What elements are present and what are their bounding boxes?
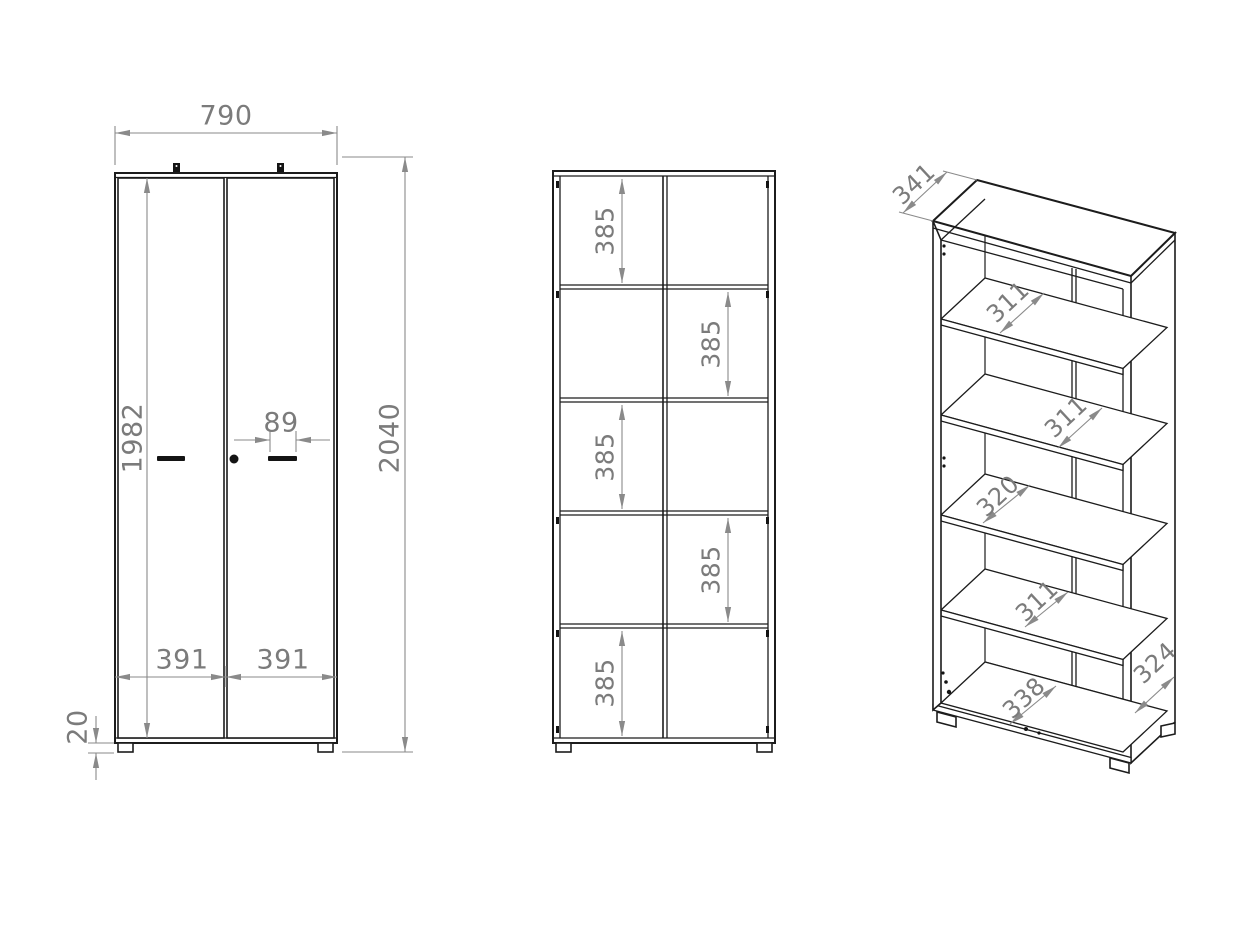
- extension-line: [899, 212, 933, 221]
- technical-drawing-canvas: 790 1982 2040 89 391 391: [0, 0, 1243, 932]
- dimension-value: 2040: [375, 403, 406, 474]
- dimension-value: 391: [256, 645, 309, 676]
- cam-mark: [556, 181, 559, 188]
- pin-hole: [941, 671, 944, 674]
- extension-line: [943, 171, 977, 180]
- carcass-outline: [553, 171, 775, 743]
- cam-dot: [1037, 731, 1040, 734]
- cam-mark: [766, 181, 769, 188]
- front-view: 790 1982 2040 89 391 391: [63, 101, 414, 781]
- open-left-foot: [556, 743, 571, 752]
- pin-hole: [942, 252, 945, 255]
- wall-clip-left-hole: [176, 165, 178, 167]
- front-left-foot: [118, 743, 133, 752]
- cam-mark: [556, 291, 559, 298]
- right-door-handle: [268, 456, 297, 461]
- cabinet-dimension-drawing: 790 1982 2040 89 391 391: [0, 0, 1243, 932]
- dimension-value: 790: [199, 101, 252, 132]
- pin-hole: [944, 680, 948, 684]
- open-right-foot: [757, 743, 772, 752]
- perspective-view: 341 311 311 320 311 338 324: [887, 158, 1182, 773]
- dimension-value: 341: [887, 158, 941, 211]
- iso-back-right-foot: [1161, 723, 1175, 737]
- pin-hole: [942, 244, 945, 247]
- pin-hole: [947, 690, 951, 694]
- dimension-value: 89: [263, 408, 298, 439]
- cam-mark: [766, 517, 769, 524]
- cam-dot: [1024, 727, 1028, 731]
- pin-hole: [942, 456, 945, 459]
- cam-mark: [766, 291, 769, 298]
- cam-mark: [766, 726, 769, 733]
- cam-mark: [556, 517, 559, 524]
- left-side-panel-edge: [933, 221, 941, 710]
- cam-mark: [556, 630, 559, 637]
- dimension-value: 391: [155, 645, 208, 676]
- pin-hole: [942, 464, 945, 467]
- wall-clip-right: [277, 163, 284, 173]
- dimension-value: 1982: [118, 403, 149, 474]
- open-view: 385 385 385 385 385: [553, 171, 775, 752]
- dimension-value: 385: [591, 206, 620, 255]
- left-door-handle: [157, 456, 185, 461]
- dim-total-height: 2040: [342, 157, 413, 752]
- dimension-value: 385: [591, 658, 620, 707]
- dim-front-width: 790: [115, 101, 337, 166]
- dim-plinth-height: 20: [63, 709, 115, 780]
- lock-dot: [230, 455, 239, 464]
- cam-mark: [556, 726, 559, 733]
- cam-mark: [766, 630, 769, 637]
- dimension-value: 385: [697, 319, 726, 368]
- dimension-value: 385: [697, 545, 726, 594]
- dimension-value: 20: [63, 709, 94, 744]
- front-right-foot: [318, 743, 333, 752]
- wall-clip-left: [173, 163, 180, 173]
- dimension-value: 385: [591, 432, 620, 481]
- wall-clip-right-hole: [280, 165, 282, 167]
